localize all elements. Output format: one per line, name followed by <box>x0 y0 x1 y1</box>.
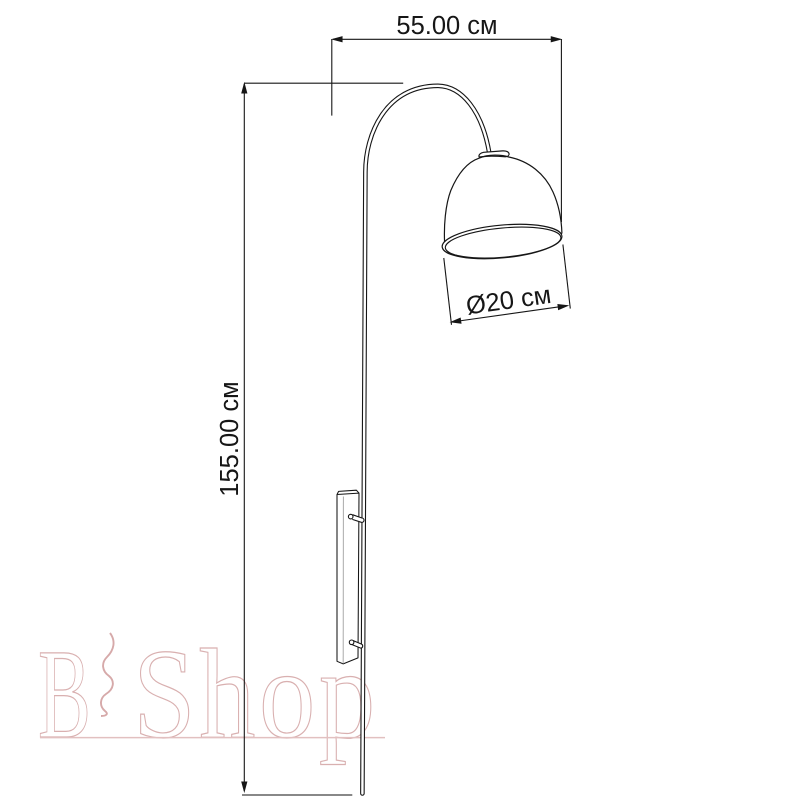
svg-text:155.00 см: 155.00 см <box>216 381 244 496</box>
svg-text:B: B <box>38 624 91 766</box>
svg-text:55.00 см: 55.00 см <box>396 12 497 40</box>
